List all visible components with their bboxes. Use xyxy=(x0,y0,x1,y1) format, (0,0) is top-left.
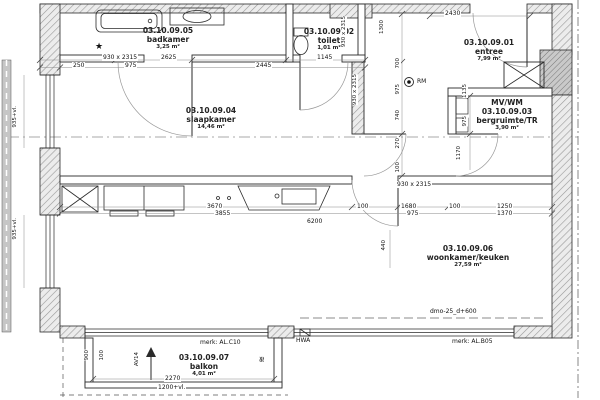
dim-100v: 100 xyxy=(395,162,401,173)
room-code: 03.10.09.04 xyxy=(172,106,250,115)
room-name: balkon xyxy=(168,362,240,371)
dim-balkon-2270: 2270 xyxy=(164,375,181,382)
dim-berg-975: 975 xyxy=(462,116,468,127)
shaft-box xyxy=(504,62,544,88)
room-name: toilet xyxy=(300,36,358,45)
dim-6200: 6200 xyxy=(306,218,323,225)
dim-badkamer-door: 930 x 2315 xyxy=(102,54,138,61)
room-label-woonkamer: 03.10.09.06 woonkamer/keuken 27,59 m² xyxy=(412,244,524,269)
dim-2625: 2625 xyxy=(160,54,177,61)
merk-facade-label: merk: AL.B05 xyxy=(452,338,493,345)
dim-2445: 2445 xyxy=(255,62,272,69)
dim-700: 700 xyxy=(395,58,401,69)
room-area: 7,99 m² xyxy=(450,56,528,63)
room-code: 03.10.09.07 xyxy=(168,353,240,362)
room-label-entree: 03.10.09.01 entree 7,99 m² xyxy=(450,38,528,63)
dim-window2: 935+vl. xyxy=(12,218,18,240)
room-area: 3,90 m² xyxy=(464,125,550,132)
balcony-arrow xyxy=(146,347,156,380)
room-name: woonkamer/keuken xyxy=(412,253,524,262)
dim-440: 440 xyxy=(381,240,387,251)
dim-balkon-900: 900 xyxy=(84,350,90,361)
merk-balkon-label: merk: AL.C10 xyxy=(200,339,241,346)
drain-symbol: ≋ xyxy=(257,356,266,363)
dmo-label: dmo-25_d+600 xyxy=(430,308,477,315)
rm-smoke-detector xyxy=(405,78,414,87)
room-label-toilet: 03.10.09.02 toilet 1,01 m² xyxy=(300,27,358,52)
dim-berg-1135: 1135 xyxy=(462,84,468,98)
dim-balkon-level: 1200+vl. xyxy=(157,384,186,391)
dim-2430: 2430 xyxy=(444,10,461,17)
dim-1300: 1300 xyxy=(379,20,385,34)
room-code: 03.10.09.05 xyxy=(128,26,208,35)
rm-label: RM xyxy=(417,78,426,85)
dim-corridor-door: 930 x 2315 xyxy=(352,74,358,105)
dim-975: 975 xyxy=(124,62,137,69)
room-name: slaapkamer xyxy=(172,115,250,124)
room-code: 03.10.09.06 xyxy=(412,244,524,253)
dim-975b: 975 xyxy=(406,210,419,217)
dimension-lines xyxy=(24,14,552,379)
room-name: entree xyxy=(450,47,528,56)
room-label-slaapkamer: 03.10.09.04 slaapkamer 14,46 m² xyxy=(172,106,250,131)
dim-1250: 1250 xyxy=(496,203,513,210)
dim-3670: 3670 xyxy=(206,203,223,210)
room-area: 3,25 m² xyxy=(128,44,208,51)
dim-1370: 1370 xyxy=(496,210,513,217)
dim-3855: 3855 xyxy=(214,210,231,217)
dimension-ticks xyxy=(37,11,555,382)
room-code: 03.10.09.01 xyxy=(450,38,528,47)
star-marker: ★ xyxy=(95,42,103,52)
dim-250: 250 xyxy=(72,62,85,69)
dim-balkon-100: 100 xyxy=(99,350,105,361)
dim-berg-door: 930 x 2315 xyxy=(396,181,432,188)
room-prefix: MV/WM xyxy=(464,98,550,107)
kitchen-counter xyxy=(62,186,330,216)
room-code: 03.10.09.03 xyxy=(464,107,550,116)
room-code: 03.10.09.02 xyxy=(300,27,358,36)
dim-berg-1170: 1170 xyxy=(456,146,462,160)
dim-1680: 1680 xyxy=(400,203,417,210)
dim-975v: 975 xyxy=(395,84,401,95)
dim-1145: 1145 xyxy=(316,54,333,61)
room-name: badkamer xyxy=(128,35,208,44)
room-area: 1,01 m² xyxy=(300,45,358,52)
dim-window1: 935+vl. xyxy=(12,106,18,128)
room-area: 14,46 m² xyxy=(172,124,250,131)
dim-toilet-door: 930 x 2315 xyxy=(341,16,347,47)
floor-plan: 03.10.09.05 badkamer 3,25 m² 03.10.09.02… xyxy=(0,0,600,400)
dim-100b: 100 xyxy=(448,203,461,210)
balkon-code: AV14 xyxy=(134,352,140,366)
room-name: bergruimte/TR xyxy=(464,116,550,125)
hwa-label: HWA xyxy=(296,337,310,344)
room-label-balkon: 03.10.09.07 balkon 4,01 m² xyxy=(168,353,240,378)
dim-740: 740 xyxy=(395,110,401,121)
room-label-bergruimte: MV/WM 03.10.09.03 bergruimte/TR 3,90 m² xyxy=(464,98,550,132)
dim-270: 270 xyxy=(395,138,401,149)
room-label-badkamer: 03.10.09.05 badkamer 3,25 m² xyxy=(128,26,208,51)
left-outer-wall xyxy=(2,60,11,332)
room-area: 27,59 m² xyxy=(412,262,524,269)
dim-100a: 100 xyxy=(356,203,369,210)
